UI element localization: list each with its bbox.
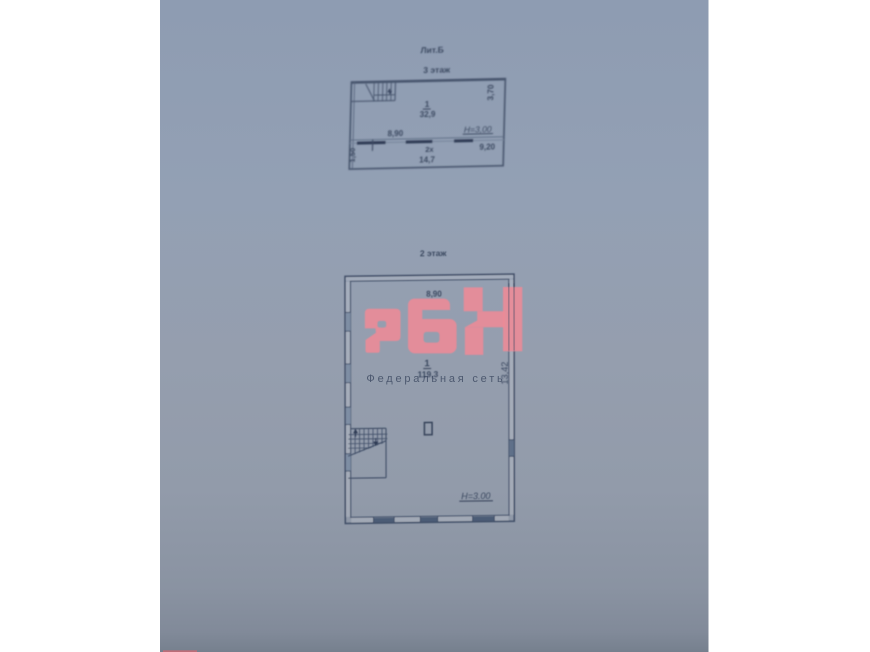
svg-text:2х: 2х [425, 145, 434, 154]
svg-text:1: 1 [424, 358, 430, 369]
svg-text:9,20: 9,20 [479, 142, 495, 151]
svg-text:Н=3.00: Н=3.00 [461, 491, 490, 501]
svg-text:1,50: 1,50 [348, 148, 357, 163]
svg-text:2 этаж: 2 этаж [420, 248, 448, 258]
svg-text:3,70: 3,70 [485, 84, 495, 101]
svg-text:8,90: 8,90 [387, 129, 403, 138]
svg-text:32,9: 32,9 [420, 110, 436, 119]
svg-text:Лит.Б: Лит.Б [420, 45, 443, 55]
svg-text:3 этаж: 3 этаж [423, 65, 451, 76]
svg-text:8,90: 8,90 [426, 289, 442, 298]
svg-text:Федеральная сеть: Федеральная сеть [366, 373, 505, 385]
svg-text:14,7: 14,7 [419, 156, 435, 165]
svg-text:Н=3,00: Н=3,00 [464, 124, 492, 135]
svg-text:1: 1 [425, 99, 430, 109]
